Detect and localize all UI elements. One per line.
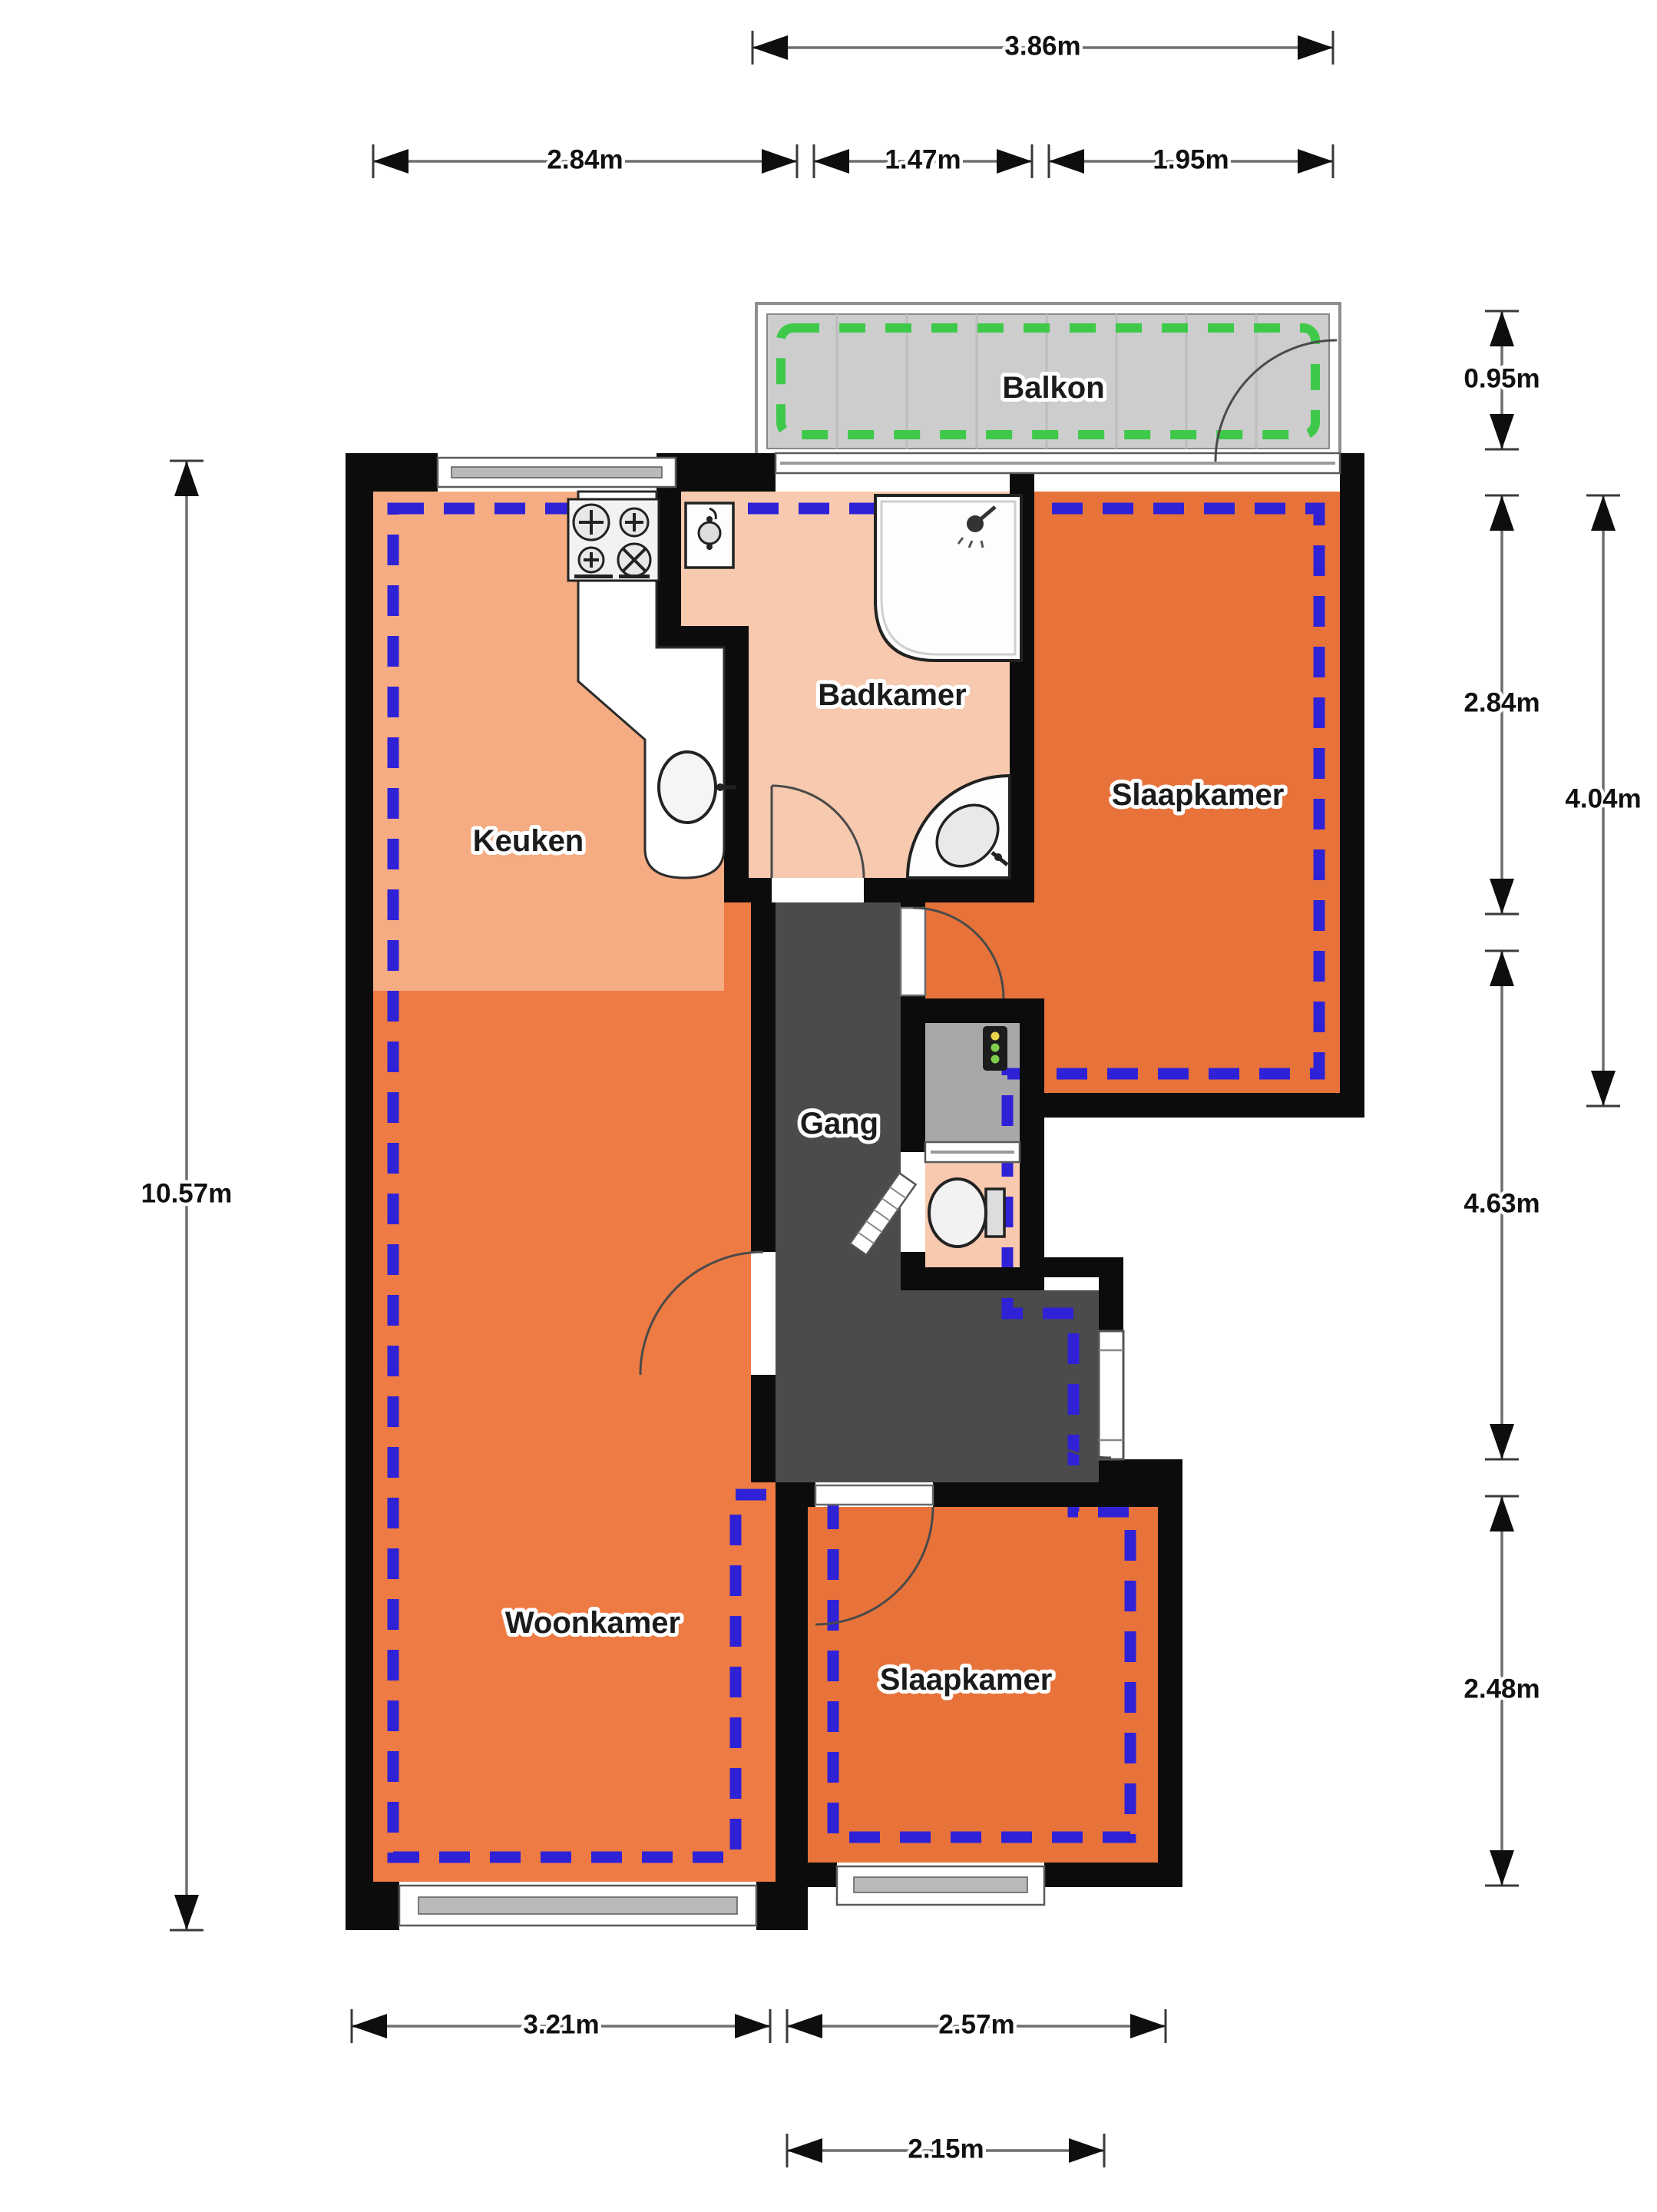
window-living-bottom xyxy=(399,1886,756,1926)
floorplan-drawing: Balkon Badkamer Slaapkamer Keuken Gang W… xyxy=(0,0,1657,2212)
room-slaapkamer-top-nook-floor xyxy=(925,902,1034,998)
label-gang: Gang xyxy=(800,1107,878,1141)
wall-gang-left-b xyxy=(751,1375,776,1482)
floorplan-page: Balkon Badkamer Slaapkamer Keuken Gang W… xyxy=(0,0,1657,2212)
wall-right-bottom xyxy=(1158,1485,1182,1887)
wall-step-entry-bottom xyxy=(1099,1459,1182,1485)
wall-bath-bottom-b xyxy=(864,878,1034,902)
label-balkon: Balkon xyxy=(1002,371,1104,405)
svg-text:1.47m: 1.47m xyxy=(885,144,961,174)
wall-step-entry-top xyxy=(1020,1257,1123,1277)
dim-width-badkamer-147: 1.47m xyxy=(814,144,1032,178)
toilet-fixture xyxy=(929,1179,1004,1247)
svg-text:2.84m: 2.84m xyxy=(1464,687,1540,717)
wall-left xyxy=(346,453,373,1930)
wall-kitchen-bath-jog xyxy=(657,626,749,649)
dim-bottom-321: 3.21m xyxy=(352,2009,770,2043)
wall-right-top xyxy=(1340,453,1364,1118)
wall-bedroomtop-bottom xyxy=(1020,1093,1364,1118)
svg-text:2.57m: 2.57m xyxy=(938,2009,1014,2039)
dim-left-1057: 10.57m xyxy=(141,461,233,1930)
window-bedroom-bottom xyxy=(837,1866,1044,1905)
wall-top-b xyxy=(676,453,776,492)
dim-width-keuken-284: 2.84m xyxy=(373,144,797,178)
wall-kitchen-bath-lower xyxy=(724,649,749,902)
wall-toilet-left-a xyxy=(901,1023,925,1152)
wall-right-middle xyxy=(1020,998,1044,1257)
svg-text:4.04m: 4.04m xyxy=(1565,783,1641,813)
label-slaapkamer-bottom: Slaapkamer xyxy=(880,1663,1053,1697)
balcony-glass-wall xyxy=(776,453,1340,473)
wall-top-a xyxy=(346,453,438,492)
svg-text:2.15m: 2.15m xyxy=(908,2134,984,2164)
wall-bedroombottom-top-b xyxy=(933,1482,1182,1507)
dim-bottom-215: 2.15m xyxy=(787,2134,1104,2167)
svg-text:4.63m: 4.63m xyxy=(1464,1188,1540,1218)
dim-top-386: 3.86m xyxy=(752,31,1333,65)
window-kitchen-top xyxy=(438,458,676,487)
label-keuken: Keuken xyxy=(473,824,584,858)
dim-right-463: 4.63m xyxy=(1464,951,1540,1459)
svg-text:0.95m: 0.95m xyxy=(1464,363,1540,393)
stove-icon xyxy=(568,499,659,581)
label-slaapkamer-top: Slaapkamer xyxy=(1112,778,1285,812)
label-badkamer: Badkamer xyxy=(818,678,966,712)
wall-bath-bottom-a xyxy=(724,878,772,902)
meter-panel-icon xyxy=(983,1026,1007,1071)
toilet-bowl-icon xyxy=(929,1179,986,1247)
wall-gang-left-a xyxy=(751,902,776,1252)
dim-right-248: 2.48m xyxy=(1464,1496,1540,1886)
room-woonkamer-floor xyxy=(373,902,783,1882)
wall-above-frontdoor xyxy=(1099,1277,1123,1331)
svg-text:2.48m: 2.48m xyxy=(1464,1674,1540,1704)
toilet-tank xyxy=(986,1189,1004,1237)
dim-bottom-257: 2.57m xyxy=(787,2009,1166,2043)
meter-closet-door xyxy=(925,1142,1020,1162)
dim-width-slaapkamer-195: 1.95m xyxy=(1049,144,1333,178)
svg-text:2.84m: 2.84m xyxy=(547,144,623,174)
dim-right-095: 0.95m xyxy=(1464,311,1540,449)
wall-living-bottom-b xyxy=(756,1882,808,1930)
svg-text:3.21m: 3.21m xyxy=(523,2009,599,2039)
svg-text:3.86m: 3.86m xyxy=(1004,31,1080,61)
label-woonkamer: Woonkamer xyxy=(505,1606,680,1640)
svg-text:10.57m: 10.57m xyxy=(141,1178,233,1208)
svg-text:1.95m: 1.95m xyxy=(1153,144,1229,174)
shower-icon xyxy=(875,495,1021,661)
small-basin-icon xyxy=(686,503,733,568)
dim-right-404: 4.04m xyxy=(1565,495,1641,1106)
wall-bedroombottom-bottom-b xyxy=(1044,1863,1182,1887)
wall-living-bottom-a xyxy=(346,1882,399,1930)
dim-right-284: 2.84m xyxy=(1464,495,1540,914)
